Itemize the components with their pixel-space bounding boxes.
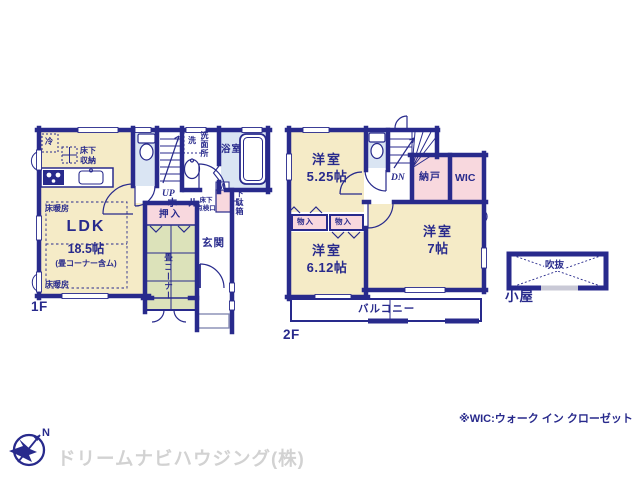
ldk-size: 18.5帖 <box>40 238 132 257</box>
attic-void-label: 吹抜 <box>544 260 565 271</box>
room-525-label: 洋室 5.25帖 <box>296 152 358 186</box>
f1-kitchen <box>41 168 113 187</box>
inspection-hatch-label: 床下 点検口 <box>194 197 218 213</box>
heated-floor-label-1: 床暖房 <box>45 204 69 214</box>
room-525-size: 5.25帖 <box>296 169 358 186</box>
attic-label: 小屋 <box>505 289 534 305</box>
ldk-name: LDK <box>40 218 132 236</box>
compass-north-label: N <box>42 427 50 439</box>
storage-room-label: 納戸 <box>419 172 441 184</box>
room-7-label: 洋室 7帖 <box>407 224 469 258</box>
room-525-name: 洋室 <box>296 152 358 169</box>
vanity-sink-icon <box>185 159 200 179</box>
tatami-corner-label: 畳コーナー <box>164 253 173 301</box>
wic-note: ※WIC:ウォーク イン クローゼット <box>459 410 633 426</box>
floor1-label: 1F <box>31 299 48 315</box>
closet-label: 押入 <box>159 209 182 220</box>
washer-label: 洗 <box>188 136 196 146</box>
room-612-size: 6.12帖 <box>296 260 358 277</box>
company-name: ドリームナビハウジング(株) <box>57 445 305 471</box>
room-7-name: 洋室 <box>407 224 469 241</box>
storage-2-label: 物入 <box>335 217 352 226</box>
room-612-label: 洋室 6.12帖 <box>296 243 358 277</box>
kitchen-sink-icon <box>79 171 103 184</box>
floorplan-page: 冷 床下 収納 洗 洗面所 浴室 UP ホール M 下駄箱 床下 点検口 押入 … <box>0 0 640 480</box>
room-7-size: 7帖 <box>407 241 469 258</box>
balcony-label: バルコニー <box>358 303 415 316</box>
stairs-down-label: DN <box>391 173 405 184</box>
room-612-name: 洋室 <box>296 243 358 260</box>
meter-box-label: M <box>218 182 225 192</box>
underfloor-storage-label: 床下 収納 <box>80 146 96 165</box>
ldk-room-label: LDK 18.5帖 (畳コーナー含ム) <box>40 218 132 269</box>
storage-1-label: 物入 <box>297 217 314 226</box>
entrance-label: 玄関 <box>202 237 225 250</box>
bathtub-icon <box>240 134 266 184</box>
shoe-cabinet-label: 下駄箱 <box>235 189 243 216</box>
ldk-note: (畳コーナー含ム) <box>40 258 132 269</box>
fridge-label: 冷 <box>45 137 53 147</box>
wic-label: WIC <box>455 172 475 185</box>
washroom-label: 洗面所 <box>200 131 208 158</box>
heated-floor-label-2: 床暖房 <box>45 280 69 290</box>
floor2-label: 2F <box>283 327 300 343</box>
compass-logo-icon <box>9 435 44 465</box>
bathroom-label: 浴室 <box>221 144 242 155</box>
